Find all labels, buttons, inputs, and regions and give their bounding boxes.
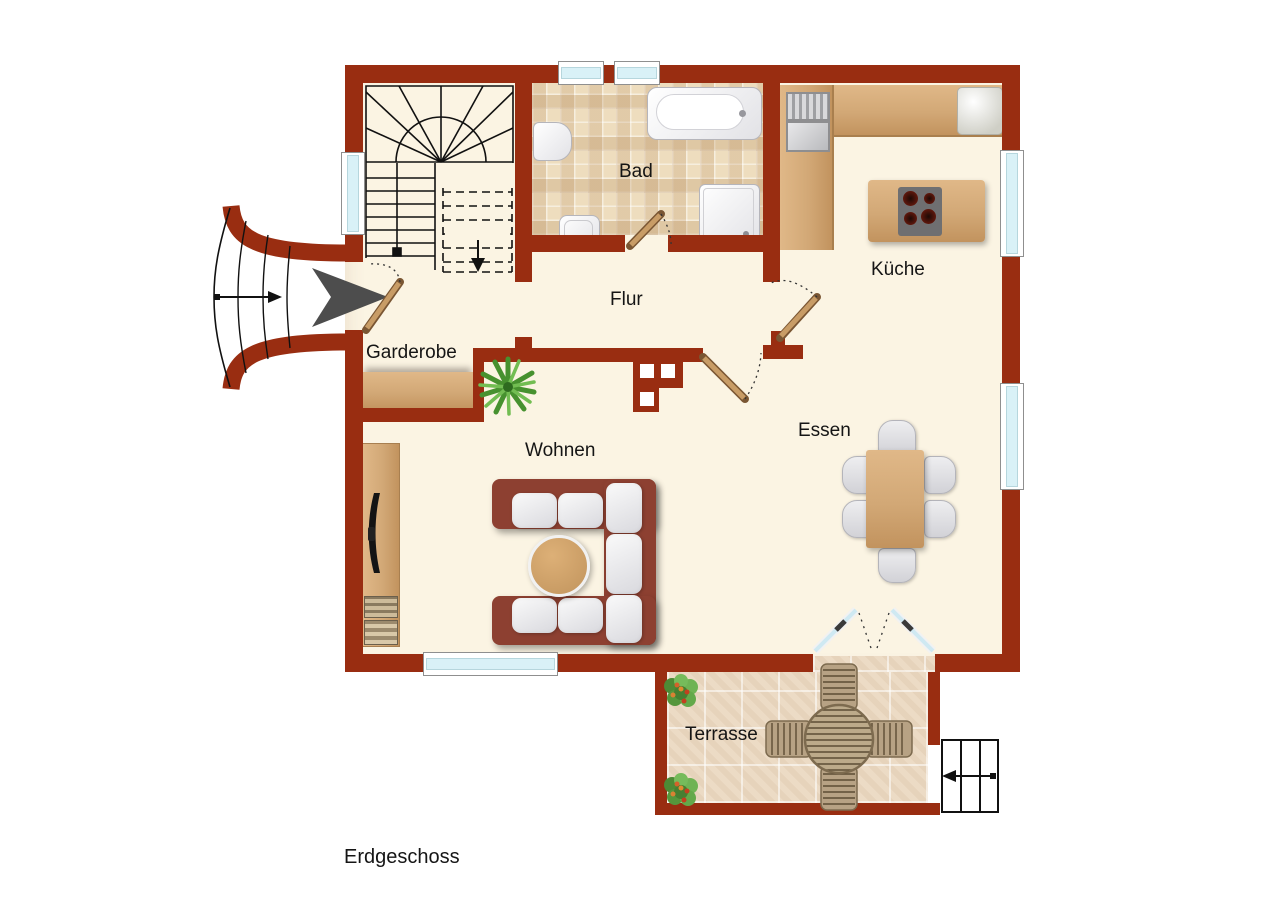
window	[614, 61, 660, 85]
dining-table	[866, 450, 924, 548]
window-glass	[617, 67, 657, 79]
bathtub	[647, 87, 762, 140]
sofa-cushion	[558, 598, 603, 633]
sofa-cushion	[512, 598, 557, 633]
chimney-flue	[640, 364, 654, 378]
chimney-flue	[661, 364, 675, 378]
room-label-flur: Flur	[610, 289, 643, 311]
terrace-steps	[941, 739, 999, 813]
burner	[904, 212, 917, 225]
shelf-books	[364, 596, 398, 618]
terrace-threshold	[813, 656, 935, 672]
burner	[924, 193, 935, 204]
room-label-kueche: Küche	[871, 259, 925, 281]
bathtub-basin	[656, 94, 744, 130]
sofa-cushion	[558, 493, 603, 528]
sofa-cushion	[606, 595, 642, 643]
wall-segment	[345, 65, 1020, 83]
sofa-cushion	[606, 483, 642, 533]
kitchen-sink	[786, 121, 830, 152]
wall-segment	[763, 83, 780, 282]
room-label-terrasse: Terrasse	[685, 724, 758, 746]
wall-segment	[771, 331, 785, 347]
dining-chair	[924, 456, 956, 494]
wall-segment	[935, 654, 1020, 672]
wall-segment	[1002, 255, 1020, 383]
floor-title: Erdgeschoss	[344, 846, 460, 869]
window-glass	[561, 67, 601, 79]
window-glass	[1006, 386, 1018, 487]
wall-segment	[655, 803, 940, 815]
window	[558, 61, 604, 85]
shelf-books	[364, 620, 398, 645]
floor-plan: Bad Flur Küche Garderobe Wohnen Essen Te…	[0, 0, 1280, 905]
wall-segment	[345, 65, 363, 152]
wall-segment	[345, 330, 363, 672]
wall-segment	[345, 654, 423, 672]
wall-segment	[763, 345, 803, 359]
burner	[921, 209, 936, 224]
wall-segment	[655, 672, 667, 815]
coffee-table	[528, 535, 590, 597]
room-label-wohnen: Wohnen	[525, 440, 595, 462]
wall-segment	[668, 235, 763, 252]
wall-segment	[532, 235, 625, 252]
room-label-garderobe: Garderobe	[366, 342, 457, 364]
wall-segment	[356, 408, 483, 422]
wall-segment	[1002, 488, 1020, 672]
room-label-essen: Essen	[798, 420, 851, 442]
chimney-flue	[640, 392, 654, 406]
dining-chair	[924, 500, 956, 538]
window	[1000, 383, 1024, 490]
sofa-cushion	[606, 534, 642, 594]
toilet	[533, 122, 572, 161]
dining-chair	[878, 548, 916, 583]
wall-segment	[928, 672, 940, 745]
window-glass	[347, 155, 359, 232]
refrigerator	[957, 87, 1003, 135]
sink-drainer	[786, 92, 830, 121]
room-label-bad: Bad	[619, 161, 653, 183]
wardrobe	[363, 372, 473, 410]
bathtub-faucet	[739, 110, 746, 117]
window-glass	[1006, 153, 1018, 254]
wall-segment	[515, 83, 532, 282]
wall-segment	[345, 233, 363, 262]
sofa-cushion	[512, 493, 557, 528]
wall-segment	[556, 654, 813, 672]
burner	[903, 191, 918, 206]
window	[1000, 150, 1024, 257]
window	[423, 652, 558, 676]
window	[341, 152, 365, 235]
wall-segment	[1002, 65, 1020, 150]
entry-steps-arrow	[214, 291, 282, 303]
window-glass	[426, 658, 555, 670]
